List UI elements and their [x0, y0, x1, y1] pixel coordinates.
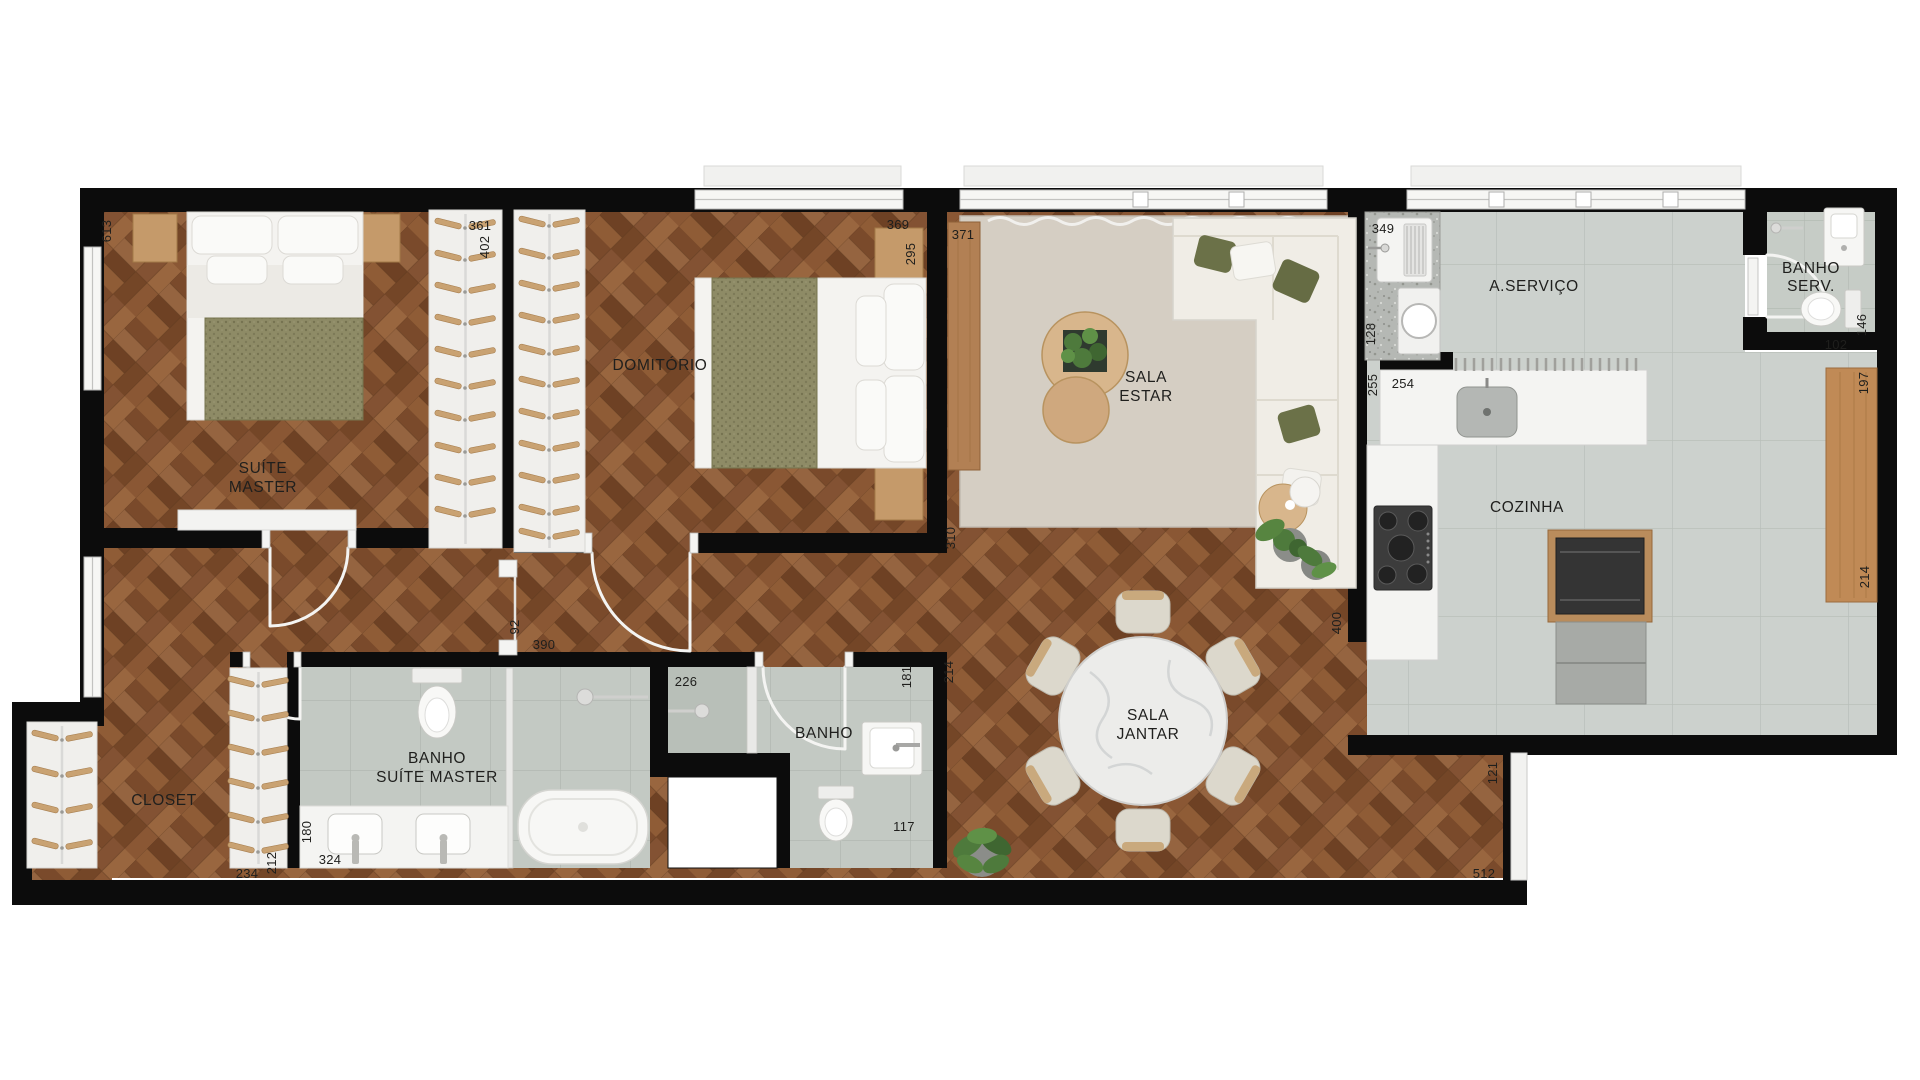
dim-400: 400: [1329, 612, 1344, 635]
toilet-banho: [818, 786, 854, 841]
window-mullion: [1133, 192, 1148, 207]
dim-214-right: 214: [1857, 566, 1872, 589]
dim-146: 146: [1854, 314, 1869, 337]
sink-drain: [1483, 408, 1491, 416]
wall-kitchen-bottom: [1348, 735, 1897, 755]
room-label-a-servico: A.SERVIÇO: [1489, 278, 1579, 295]
coffee-table-small: [1043, 377, 1109, 443]
room-label-sala-estar-line2: ESTAR: [1119, 388, 1173, 405]
shower-glass: [747, 667, 757, 753]
console-sideboard: [948, 222, 980, 470]
balcony-sill-dorm: [704, 166, 901, 186]
nightstand: [133, 214, 177, 262]
pillow: [207, 256, 267, 284]
dim-324: 324: [319, 852, 342, 867]
pillow: [856, 380, 886, 450]
faucet-icon: [1381, 244, 1389, 252]
dim-361: 361: [469, 218, 492, 233]
wall-bath-corridor-d: [853, 652, 947, 667]
wall-lower-right-white: [1511, 753, 1527, 880]
wall-banho-serv-left-a: [1743, 188, 1767, 255]
window-mullion: [1489, 192, 1504, 207]
wall-dorm-sala: [927, 188, 947, 553]
room-label-cozinha: COZINHA: [1490, 499, 1564, 516]
wall-shaft-top: [650, 753, 790, 777]
room-label-banho-suite-line1: BANHO: [408, 750, 466, 767]
desk-suite: [178, 510, 356, 530]
shower-head-icon: [695, 704, 709, 718]
balcony-sill-sala: [964, 166, 1323, 186]
sink-banho: [862, 722, 922, 775]
opening-jamb-corridor-top: [499, 560, 517, 577]
wall-banho-serv-left-b: [1743, 317, 1767, 350]
shower-head-icon: [577, 689, 593, 705]
pillow: [884, 376, 924, 462]
room-label-domitorio: DOMITÓRIO: [613, 357, 708, 374]
decor-dot: [1285, 500, 1295, 510]
pillow: [192, 216, 272, 254]
wall-banho-right: [933, 652, 947, 868]
dim-349: 349: [1372, 221, 1395, 236]
wall-lower-right-edge: [1503, 753, 1511, 880]
dim-181: 181: [899, 666, 914, 689]
dim-255: 255: [1365, 374, 1380, 397]
door-jamb: [243, 652, 250, 667]
pillow: [884, 284, 924, 370]
door-jamb: [755, 652, 763, 667]
pillow: [278, 216, 358, 254]
room-label-banho-serv-line2: SERV.: [1787, 278, 1835, 295]
wall-right: [1877, 350, 1897, 755]
dim-180: 180: [299, 821, 314, 844]
wall-suite-bottom-a: [104, 528, 270, 548]
pillow: [283, 256, 343, 284]
floor-plan: 613 361 402 369 295 371 349 128 255 254 …: [0, 0, 1920, 1080]
wall-bath-corridor-c: [668, 652, 755, 667]
door-jamb: [845, 652, 853, 667]
knit-throw: [205, 318, 363, 420]
nightstand: [875, 468, 923, 520]
wardrobe-closet-right: [227, 668, 289, 868]
room-label-sala-jantar-line1: SALA: [1127, 707, 1169, 724]
dim-102: 102: [1825, 337, 1848, 352]
toilet-banho-serv: [1801, 290, 1861, 328]
dim-402: 402: [477, 236, 492, 259]
room-label-banho-serv-line1: BANHO: [1782, 260, 1840, 277]
pillow-white: [1230, 241, 1277, 281]
room-label-closet: CLOSET: [131, 792, 197, 809]
window-mullion: [1576, 192, 1591, 207]
wardrobe-suite-master: [429, 210, 502, 548]
door-leaf-banho-serv: [1748, 258, 1758, 315]
dim-117: 117: [893, 819, 915, 834]
dim-214-corridor: 214: [941, 661, 956, 684]
dim-369: 369: [887, 217, 910, 232]
window-mullion: [1229, 192, 1244, 207]
dim-295: 295: [903, 243, 918, 266]
dim-234: 234: [236, 866, 259, 881]
door-jamb: [294, 652, 301, 667]
room-label-sala-jantar-line2: JANTAR: [1117, 726, 1180, 743]
room-label-banho-suite-line2: SUÍTE MASTER: [376, 769, 498, 786]
wall-banho-serv-right: [1875, 188, 1897, 350]
door-jamb: [262, 528, 270, 548]
balcony-sill-servico: [1411, 166, 1741, 186]
floor-plan-page: 613 361 402 369 295 371 349 128 255 254 …: [0, 0, 1920, 1080]
washer-door-icon: [1402, 304, 1436, 338]
side-table-small: [1290, 477, 1320, 507]
wardrobe-closet-left: [27, 722, 97, 868]
wall-top-pillar: [1327, 188, 1407, 212]
dim-212: 212: [264, 852, 279, 875]
dim-613: 613: [99, 220, 114, 243]
wall-dorm-bottom-b: [690, 533, 947, 553]
wall-bath-corridor-b: [300, 652, 650, 667]
dim-92: 92: [507, 619, 522, 634]
dim-310: 310: [943, 527, 958, 550]
sink-basin: [1831, 214, 1857, 238]
bathtub: [518, 790, 648, 864]
dim-512: 512: [1473, 866, 1496, 881]
room-label-sala-estar-line1: SALA: [1125, 369, 1167, 386]
dim-226: 226: [675, 674, 698, 689]
room-label-suite-master-line2: MASTER: [229, 479, 297, 496]
oven-dark: [1556, 538, 1644, 614]
sink-drain: [1841, 245, 1847, 251]
pillow: [856, 296, 886, 366]
dim-197: 197: [1856, 372, 1871, 395]
wall-suite-dorm: [502, 188, 514, 548]
door-jamb: [690, 533, 698, 553]
dish-rack: [1456, 358, 1636, 371]
wall-bottom: [12, 880, 1527, 905]
dim-390: 390: [533, 637, 556, 652]
opening-jamb-corridor-bottom: [499, 640, 517, 655]
room-label-banho: BANHO: [795, 725, 853, 742]
shower-head-icon: [1771, 223, 1781, 233]
knit-throw: [712, 278, 817, 468]
fridge-oven-tower: [1548, 530, 1652, 704]
dim-254: 254: [1392, 376, 1415, 391]
dim-128: 128: [1363, 323, 1378, 346]
dim-121: 121: [1485, 762, 1500, 785]
shaft-void: [668, 777, 777, 868]
dim-371: 371: [952, 227, 975, 242]
wardrobe-domitorio: [514, 210, 585, 552]
wall-shaft-right: [777, 777, 790, 868]
door-jamb: [348, 528, 356, 548]
cooktop: [1374, 506, 1432, 590]
window-mullion: [1663, 192, 1678, 207]
room-label-suite-master-line1: SUÍTE: [239, 460, 288, 477]
